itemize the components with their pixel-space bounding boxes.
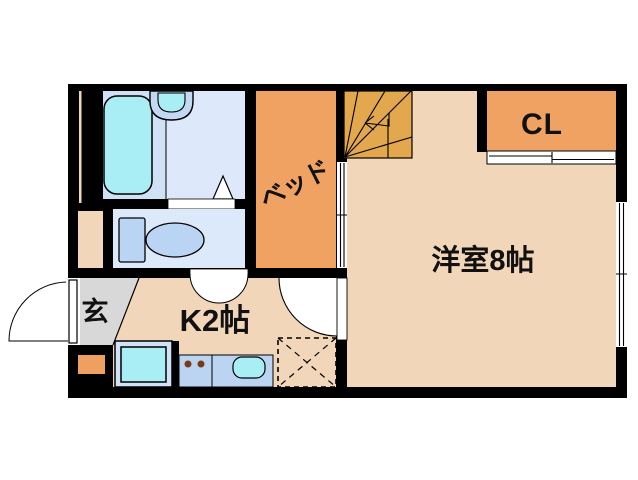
closet-left-wall [477,91,487,152]
bathtub [104,96,152,194]
wall-pipe-line [79,91,82,203]
door-leaf [337,278,347,340]
floor-plan-canvas: CL ベッド 玄 [0,0,638,480]
refrigerator [121,347,166,382]
kitchen-sink [233,357,265,378]
bed-space: ベッド [256,91,347,268]
washbasin-bowl [158,93,185,112]
bath-sliding-door [168,199,235,209]
floor-plan-drawing: CL ベッド 玄 [0,0,638,480]
stove-burner-2 [198,361,205,368]
accent-square [78,355,105,374]
bathroom [79,91,245,209]
western-room-label: 洋室8帖 [431,243,534,277]
counter-divider-wall [172,341,179,387]
stairs [344,91,412,158]
side-strip [78,211,103,268]
entrance-label: 玄 [82,296,109,327]
right-window [616,202,627,347]
closet: CL [477,91,616,164]
stove-burner-1 [185,361,192,368]
kitchen-label: K2帖 [180,303,251,338]
entrance-door-leaf [69,280,77,343]
toilet-bowl [146,223,204,257]
closet-label: CL [521,108,563,141]
toilet-tank [119,218,145,262]
